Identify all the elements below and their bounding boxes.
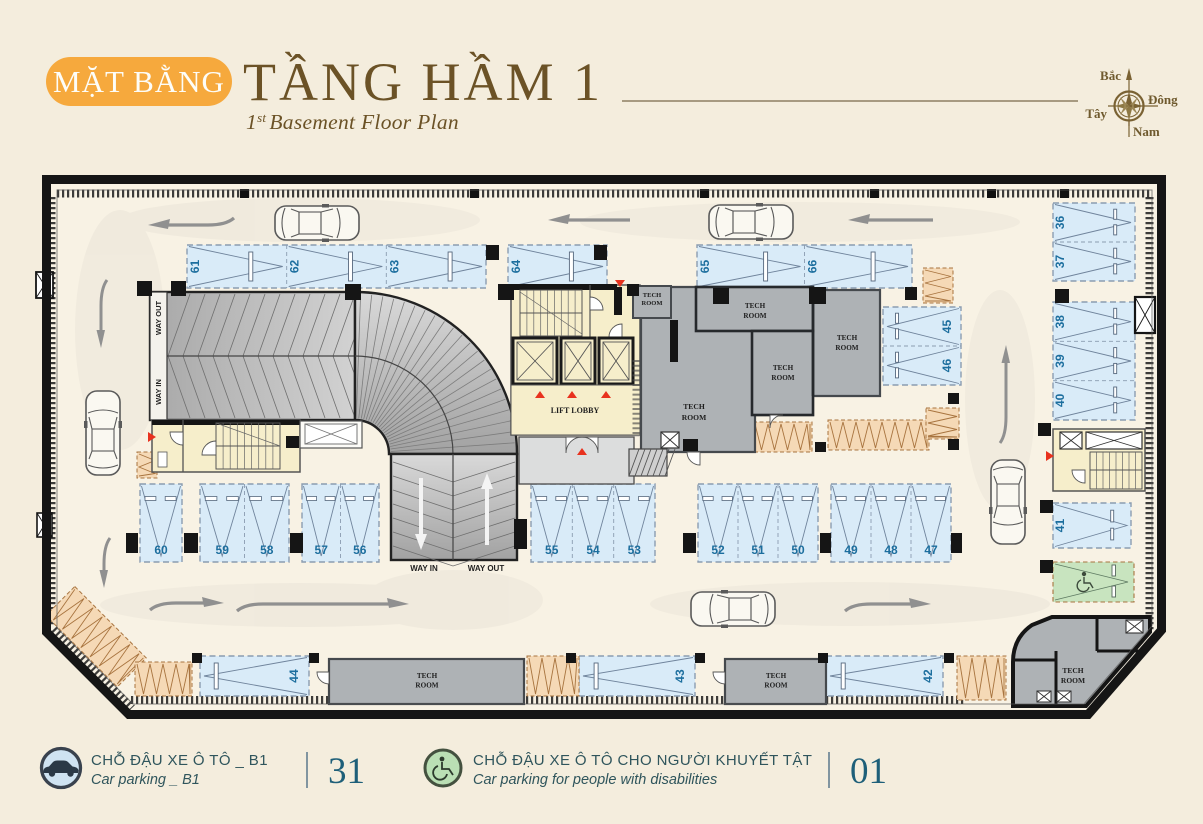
svg-text:44: 44	[287, 669, 301, 683]
svg-text:ROOM: ROOM	[771, 374, 794, 382]
svg-text:ROOM: ROOM	[1061, 676, 1085, 685]
svg-text:39: 39	[1053, 354, 1067, 368]
svg-text:Bắc: Bắc	[1100, 68, 1121, 83]
svg-text:TECH: TECH	[837, 334, 858, 342]
svg-text:TECH: TECH	[773, 364, 794, 372]
svg-text:ROOM: ROOM	[743, 312, 766, 320]
svg-text:40: 40	[1053, 393, 1067, 407]
svg-text:47: 47	[924, 543, 938, 557]
svg-text:Car parking _ B1: Car parking _ B1	[91, 772, 200, 788]
svg-text:59: 59	[216, 543, 230, 557]
svg-text:54: 54	[586, 543, 600, 557]
svg-text:37: 37	[1053, 255, 1067, 269]
svg-text:65: 65	[698, 260, 712, 274]
svg-text:TECH: TECH	[1062, 666, 1083, 675]
svg-text:43: 43	[673, 669, 687, 683]
svg-text:1stBasement Floor Plan: 1stBasement Floor Plan	[246, 110, 459, 134]
svg-text:ROOM: ROOM	[682, 413, 706, 422]
svg-text:49: 49	[844, 543, 858, 557]
svg-text:MẶT BẰNG: MẶT BẰNG	[53, 64, 225, 99]
svg-text:WAY OUT: WAY OUT	[468, 564, 505, 573]
svg-text:TECH: TECH	[766, 672, 787, 680]
svg-text:48: 48	[884, 543, 898, 557]
svg-text:64: 64	[509, 260, 523, 274]
svg-text:Nam: Nam	[1133, 124, 1160, 139]
svg-text:61: 61	[188, 260, 202, 274]
svg-text:56: 56	[353, 543, 367, 557]
svg-text:52: 52	[711, 543, 725, 557]
svg-text:ROOM: ROOM	[764, 681, 787, 689]
svg-text:50: 50	[791, 543, 805, 557]
svg-text:ROOM: ROOM	[835, 344, 858, 352]
svg-text:60: 60	[154, 543, 168, 557]
svg-text:TECH: TECH	[745, 302, 766, 310]
svg-text:01: 01	[850, 751, 887, 792]
svg-text:55: 55	[545, 543, 559, 557]
svg-text:CHỖ ĐẬU XE Ô TÔ _ B1: CHỖ ĐẬU XE Ô TÔ _ B1	[91, 751, 268, 769]
svg-text:TECH: TECH	[683, 402, 705, 411]
svg-text:TECH: TECH	[643, 292, 661, 299]
svg-text:WAY IN: WAY IN	[410, 564, 438, 573]
svg-text:Tây: Tây	[1085, 106, 1107, 121]
svg-text:42: 42	[921, 669, 935, 683]
svg-text:TECH: TECH	[417, 672, 438, 680]
svg-text:53: 53	[628, 543, 642, 557]
svg-text:41: 41	[1053, 519, 1067, 533]
svg-text:TẦNG HẦM 1: TẦNG HẦM 1	[243, 51, 603, 112]
svg-text:57: 57	[315, 543, 329, 557]
svg-text:WAY IN: WAY IN	[154, 379, 163, 405]
svg-text:58: 58	[260, 543, 274, 557]
svg-text:ROOM: ROOM	[415, 681, 438, 689]
svg-text:63: 63	[387, 260, 401, 274]
svg-text:51: 51	[751, 543, 765, 557]
svg-text:WAY OUT: WAY OUT	[154, 301, 163, 336]
svg-text:LIFT LOBBY: LIFT LOBBY	[551, 406, 600, 415]
svg-text:Đông: Đông	[1148, 92, 1178, 107]
svg-text:45: 45	[940, 320, 954, 334]
svg-text:31: 31	[328, 751, 365, 792]
svg-text:ROOM: ROOM	[642, 300, 663, 307]
svg-text:Car parking for people with di: Car parking for people with disabilities	[473, 772, 717, 788]
svg-text:66: 66	[806, 260, 820, 274]
svg-text:46: 46	[940, 359, 954, 373]
svg-text:62: 62	[288, 260, 302, 274]
svg-text:36: 36	[1053, 216, 1067, 230]
svg-text:38: 38	[1053, 315, 1067, 329]
svg-text:CHỖ ĐẬU XE Ô TÔ CHO NGƯỜI KHUY: CHỖ ĐẬU XE Ô TÔ CHO NGƯỜI KHUYẾT TẬT	[473, 751, 812, 769]
